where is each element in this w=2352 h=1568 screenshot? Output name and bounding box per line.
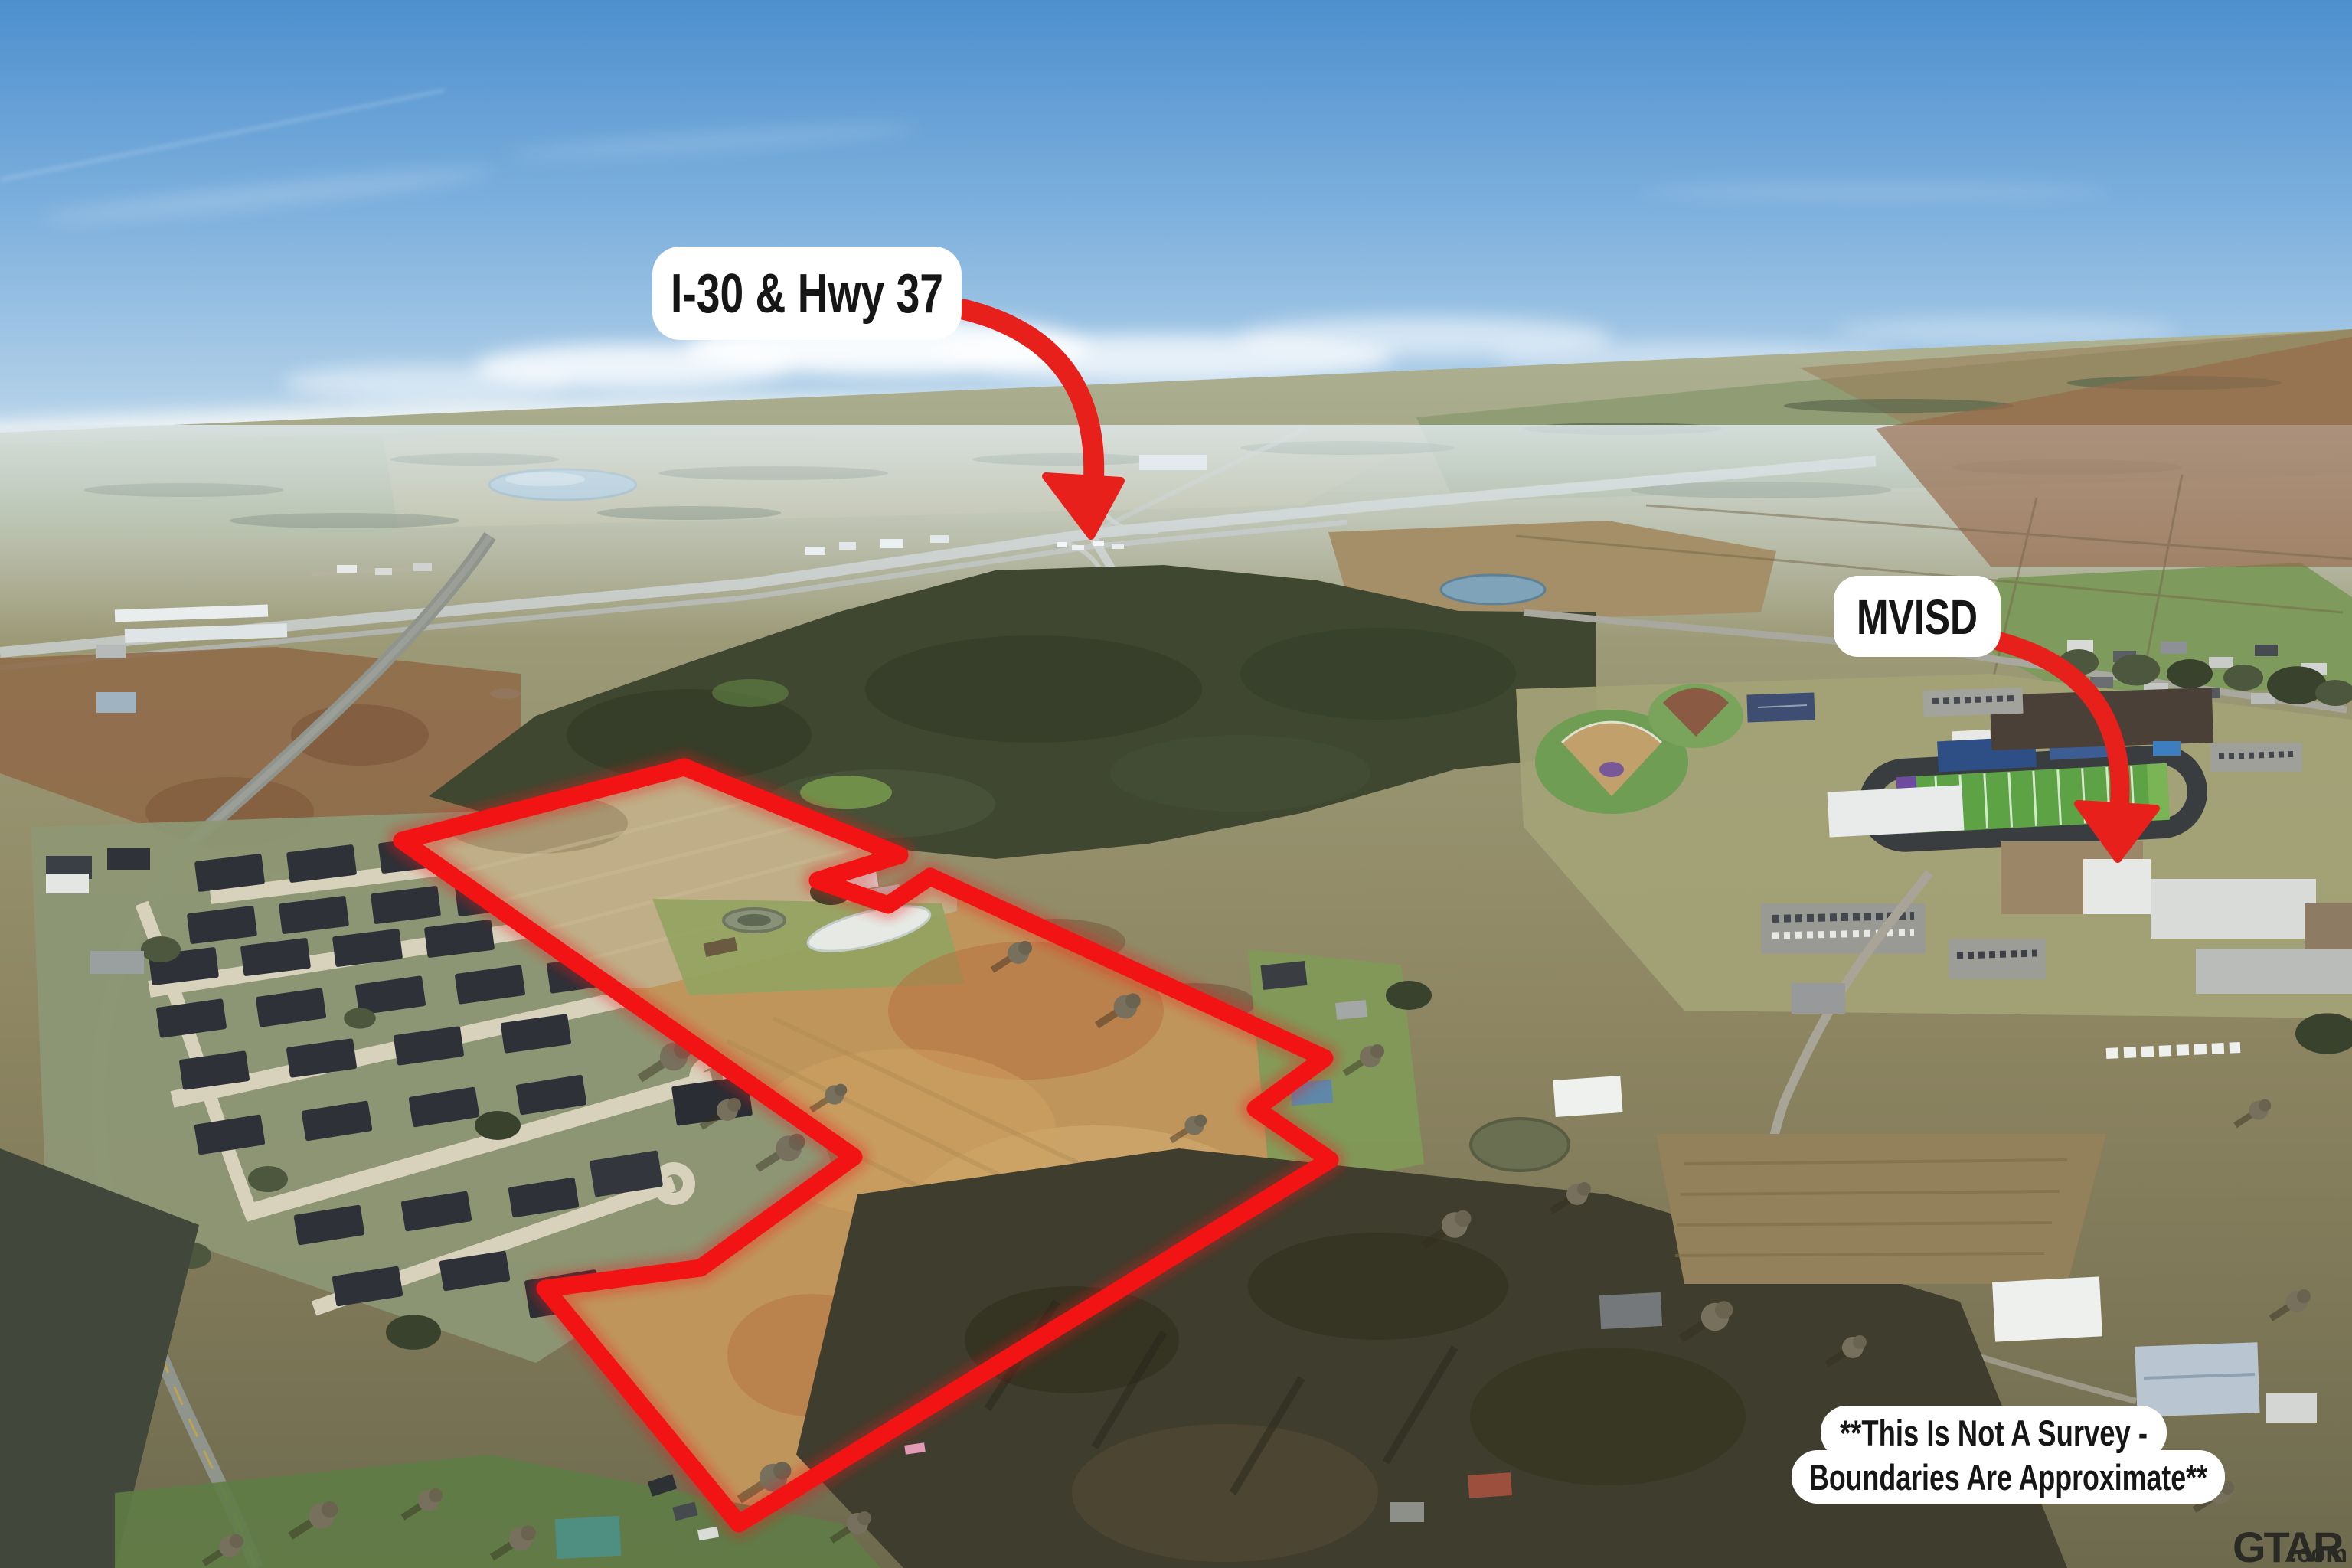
metal-barn-roof: [96, 692, 136, 713]
high-school-roof: [1828, 785, 1965, 837]
plowed-field-southeast: [1656, 1134, 2106, 1284]
gray-barn: [1792, 983, 1845, 1014]
green-roof-house: [555, 1516, 622, 1559]
highway-label-pill: I-30 & Hwy 37: [652, 247, 962, 340]
blue-metal-barn: [2135, 1342, 2259, 1417]
playground: [2153, 741, 2180, 756]
watermark: GTAR .com: [2233, 1523, 2347, 1568]
watermark-suffix: .com: [2290, 1540, 2347, 1567]
red-roof-shed: [1468, 1472, 1512, 1498]
arrow-target-building: [2083, 859, 2151, 914]
highway-label-text: I-30 & Hwy 37: [671, 263, 943, 325]
farm-pond-south: [1471, 1119, 1569, 1171]
pond-northeast: [1441, 575, 1545, 604]
softball-field: [1648, 684, 1743, 748]
industrial-arts-building: [2151, 879, 2316, 939]
disclaimer-text-line1: **This Is Not A Survey -: [1840, 1413, 2148, 1453]
aerial-listing-photo: I-30 & Hwy 37 MVISD **This Is Not A Surv…: [0, 0, 2352, 1568]
white-roof-house: [1553, 1076, 1622, 1117]
tennis-courts: [1746, 692, 1815, 722]
dark-roof-house-east: [1260, 961, 1307, 990]
disclaimer-text-line2: Boundaries Are Approximate**: [1809, 1457, 2208, 1498]
gym-building: [2196, 949, 2352, 994]
disclaimer-pill: **This Is Not A Survey - Boundaries Are …: [1792, 1406, 2225, 1504]
school-label-pill: MVISD: [1834, 576, 2001, 657]
mv-logo: [1599, 762, 1624, 777]
school-label-text: MVISD: [1857, 590, 1978, 645]
white-metal-barn: [1992, 1276, 2102, 1341]
